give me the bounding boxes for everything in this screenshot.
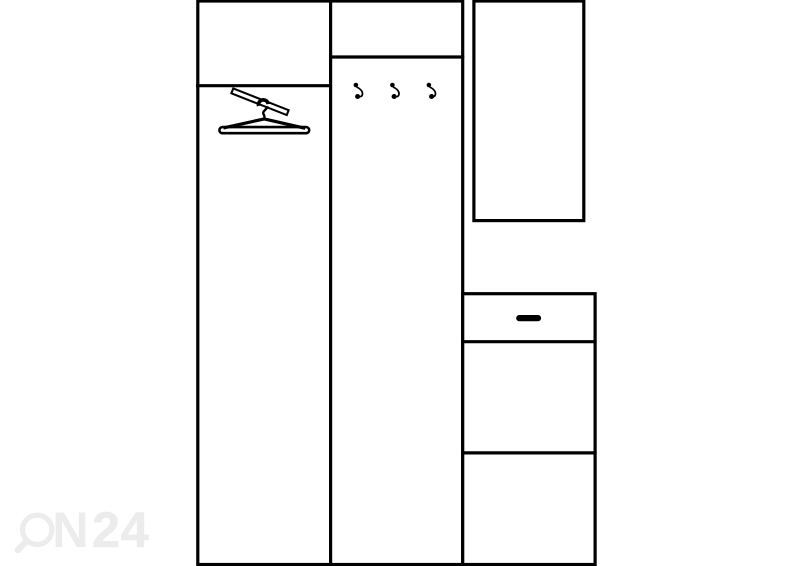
svg-text:N: N [52, 501, 88, 558]
svg-text:24: 24 [92, 501, 149, 558]
